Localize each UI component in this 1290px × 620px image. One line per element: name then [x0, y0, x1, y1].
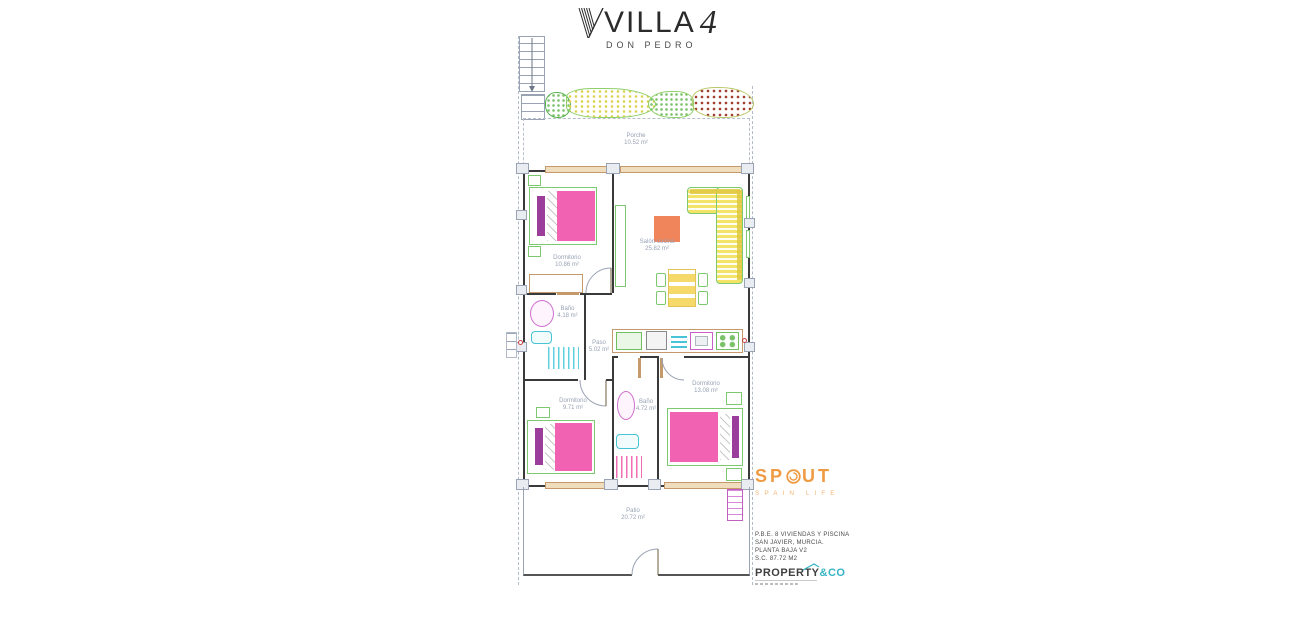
villa-subtitle: DON PEDRO: [606, 40, 748, 50]
hedge-yellow-icon: [566, 88, 656, 118]
room-label-patio: Patio 20.72 m²: [593, 508, 673, 522]
villa-title: VILLA: [604, 8, 696, 38]
dining-chair: [656, 273, 666, 287]
property-co-logo: PROPERTY&CO: [755, 567, 845, 585]
spout-logo: SP UT SPAIN LIFE: [755, 466, 865, 497]
plan-title-block: VILLA 4 DON PEDRO: [578, 8, 748, 50]
spout-tagline: SPAIN LIFE: [755, 490, 865, 497]
window-salon-right-b: [746, 230, 750, 258]
pillow-bed1: [537, 196, 545, 236]
logo-divider: [755, 580, 817, 581]
room-label-bano1: Baño 4.18 m²: [540, 306, 595, 320]
wardrobe-salon-wall: [615, 205, 626, 287]
dining-chair: [698, 291, 708, 305]
wall-salon-bed3: [684, 356, 750, 358]
window-salon: [620, 166, 742, 173]
wall-bed1-bath1-a: [523, 293, 556, 295]
entry-knob-icon: [518, 340, 523, 345]
entry-steps: [506, 332, 517, 358]
pier: [744, 278, 755, 288]
window-bed1: [545, 166, 607, 173]
spout-sun-o-icon: [786, 469, 801, 484]
door-knob-icon: [742, 338, 747, 343]
patio-door-gap: [632, 573, 658, 577]
shower-bath2: [616, 456, 642, 478]
pier: [744, 218, 755, 228]
mattress-bed3: [670, 412, 718, 462]
floor-plan-page: VILLA 4 DON PEDRO Porche 10.52 m²: [0, 0, 1290, 620]
wall-bath2-left: [612, 356, 614, 487]
hedge-green-icon: [648, 91, 694, 118]
project-info-line: S.C. 87.72 M2: [755, 555, 865, 563]
room-label-porche: Porche 10.52 m²: [596, 133, 676, 147]
wardrobe-bed1: [529, 274, 583, 293]
room-label-dormitorio2: Dormitorio 9.71 m²: [543, 398, 603, 412]
sheet-fold-bed2: [545, 424, 555, 470]
mattress-bed1: [557, 191, 595, 241]
plot-boundary-right: [752, 86, 753, 585]
wall-bath2-right: [657, 356, 659, 487]
logo-tagline-mark: [755, 583, 799, 585]
project-info-line: P.B.E. 8 VIVIENDAS Y PISCINA: [755, 531, 865, 539]
pillow-bed2: [535, 428, 543, 465]
project-info-line: PLANTA BAJA V2: [755, 547, 865, 555]
wall-salon-hall-b: [640, 356, 658, 358]
spout-name-right: UT: [802, 466, 832, 487]
nightstand: [726, 468, 742, 481]
oven-icon: [646, 331, 667, 350]
toilet-bath2: [616, 434, 639, 449]
dining-chair: [698, 273, 708, 287]
room-label-paso: Paso 5.02 m²: [573, 340, 625, 354]
door-leaf-bath2: [638, 358, 641, 378]
pier: [516, 163, 529, 174]
sink-basin: [695, 336, 708, 346]
pier: [741, 163, 754, 174]
sheet-fold-bed3: [720, 414, 730, 460]
patio-outline: [523, 487, 750, 576]
dining-table: [668, 269, 696, 307]
nightstand: [528, 175, 541, 186]
hedge-red-berries-icon: [692, 87, 754, 118]
room-label-bano2: Baño 4.72 m²: [622, 399, 670, 413]
sofa-backrest-top: [690, 189, 740, 194]
project-info-line: SAN JAVIER, MURCIA.: [755, 539, 865, 547]
toilet-bath1: [531, 331, 552, 344]
stairs-direction-arrow: [519, 36, 547, 96]
wall-bed2-top-b: [606, 379, 613, 381]
pier: [606, 163, 620, 174]
pillow-bed3: [732, 416, 739, 458]
mattress-bed2: [555, 423, 592, 471]
pier: [744, 342, 755, 352]
sofa-backrest-right: [737, 190, 742, 280]
property-co-suffix: &CO: [820, 567, 846, 579]
pier: [516, 210, 527, 220]
villa-number: 4: [700, 8, 717, 38]
room-label-dormitorio3: Dormitorio 13.08 m²: [676, 381, 736, 395]
room-label-salon: Salón-cocina 25.82 m²: [627, 239, 687, 253]
door-leaf-bath1: [557, 292, 579, 295]
dining-chair: [656, 291, 666, 305]
spout-name-left: SP: [755, 466, 785, 487]
door-leaf-bed3: [660, 358, 663, 378]
roof-icon: [802, 563, 820, 571]
room-label-dormitorio1: Dormitorio 10.86 m²: [537, 255, 597, 269]
dish-rack-icon: [671, 335, 687, 348]
plot-boundary-left: [518, 36, 519, 585]
hatched-v-icon: [578, 8, 604, 38]
sheet-fold-bed1: [547, 191, 557, 241]
stove-hob-icon: [716, 332, 739, 350]
pier: [516, 285, 527, 295]
wall-bed1-salon: [612, 170, 614, 293]
patio-stairs-feature: [727, 489, 743, 521]
exterior-stairs-lower: [521, 94, 545, 120]
project-info-block: P.B.E. 8 VIVIENDAS Y PISCINA SAN JAVIER,…: [755, 531, 865, 563]
wall-bed2-top-a: [523, 379, 578, 381]
